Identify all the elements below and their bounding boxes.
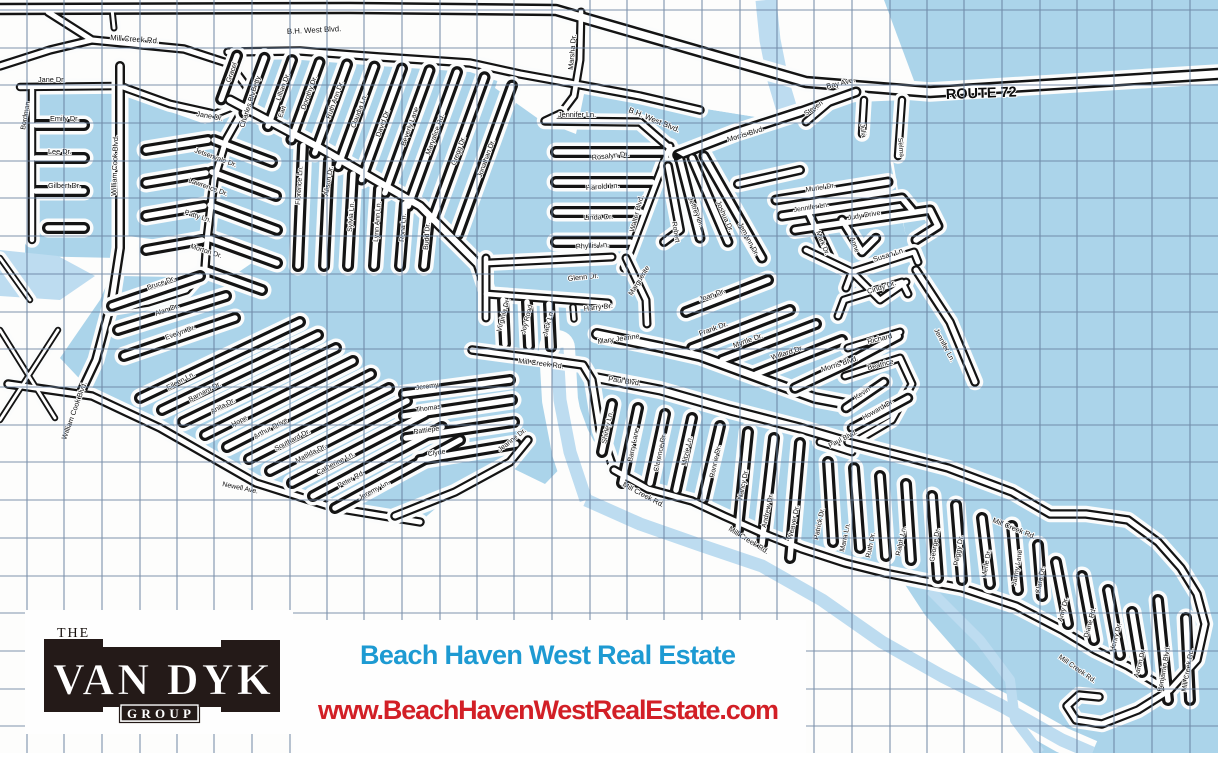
svg-text:www.BeachHavenWestRealEstate.c: www.BeachHavenWestRealEstate.com xyxy=(317,695,779,725)
svg-text:Emily Dr.: Emily Dr. xyxy=(50,114,79,123)
svg-text:THE: THE xyxy=(57,626,90,641)
svg-text:Beach Haven West Real Estate: Beach Haven West Real Estate xyxy=(360,640,736,670)
svg-text:Lee Dr.: Lee Dr. xyxy=(48,147,72,156)
svg-text:Linda Dr.: Linda Dr. xyxy=(584,212,614,222)
svg-text:VAN DYK: VAN DYK xyxy=(53,655,271,704)
svg-text:Jane Dr.: Jane Dr. xyxy=(38,75,65,84)
svg-text:ROUTE 72: ROUTE 72 xyxy=(946,85,1017,103)
